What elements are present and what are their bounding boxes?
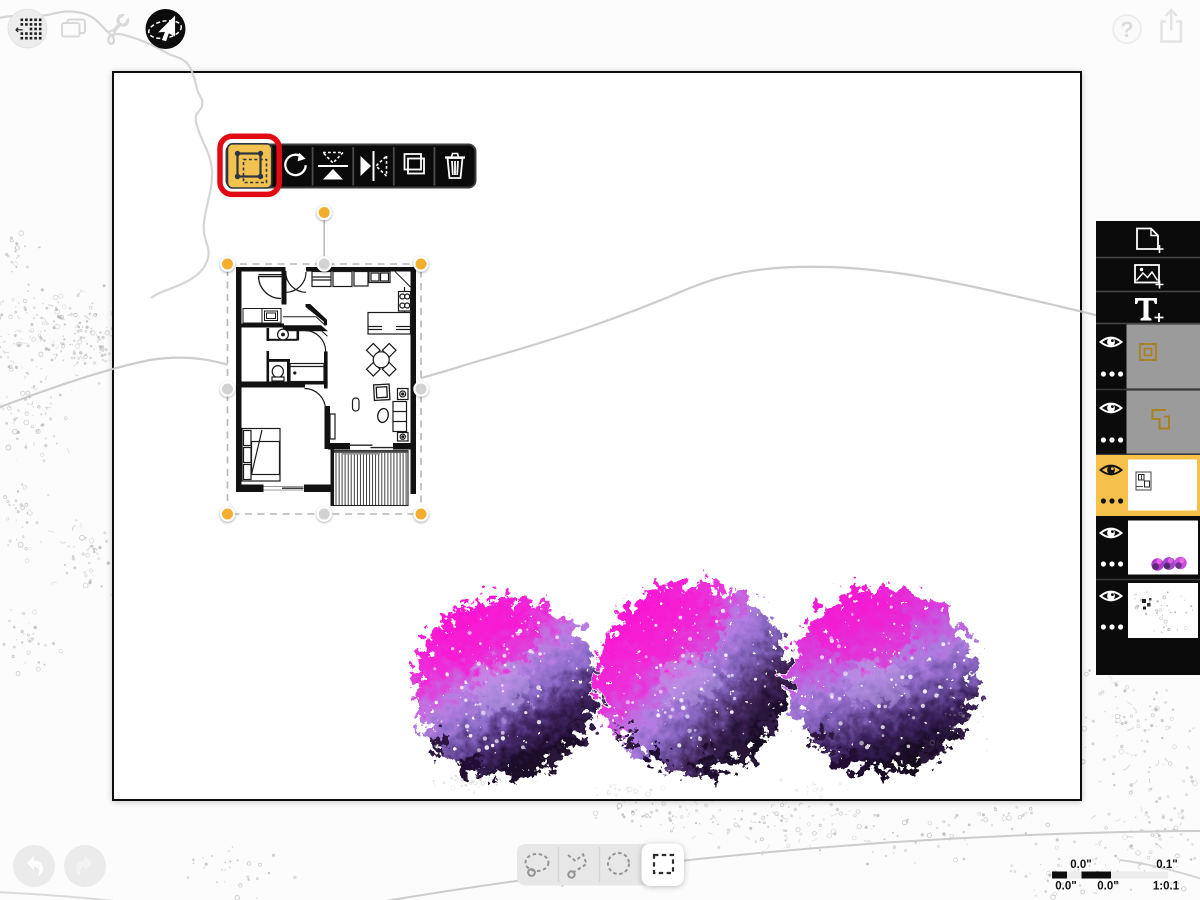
svg-text:1:0.1: 1:0.1 xyxy=(1153,881,1180,893)
svg-text:0.0": 0.0" xyxy=(1070,859,1091,871)
svg-text:0.0": 0.0" xyxy=(1097,881,1118,893)
svg-text:0.1": 0.1" xyxy=(1156,859,1177,871)
svg-text:?: ? xyxy=(1120,17,1133,42)
svg-text:0.0": 0.0" xyxy=(1055,881,1076,893)
